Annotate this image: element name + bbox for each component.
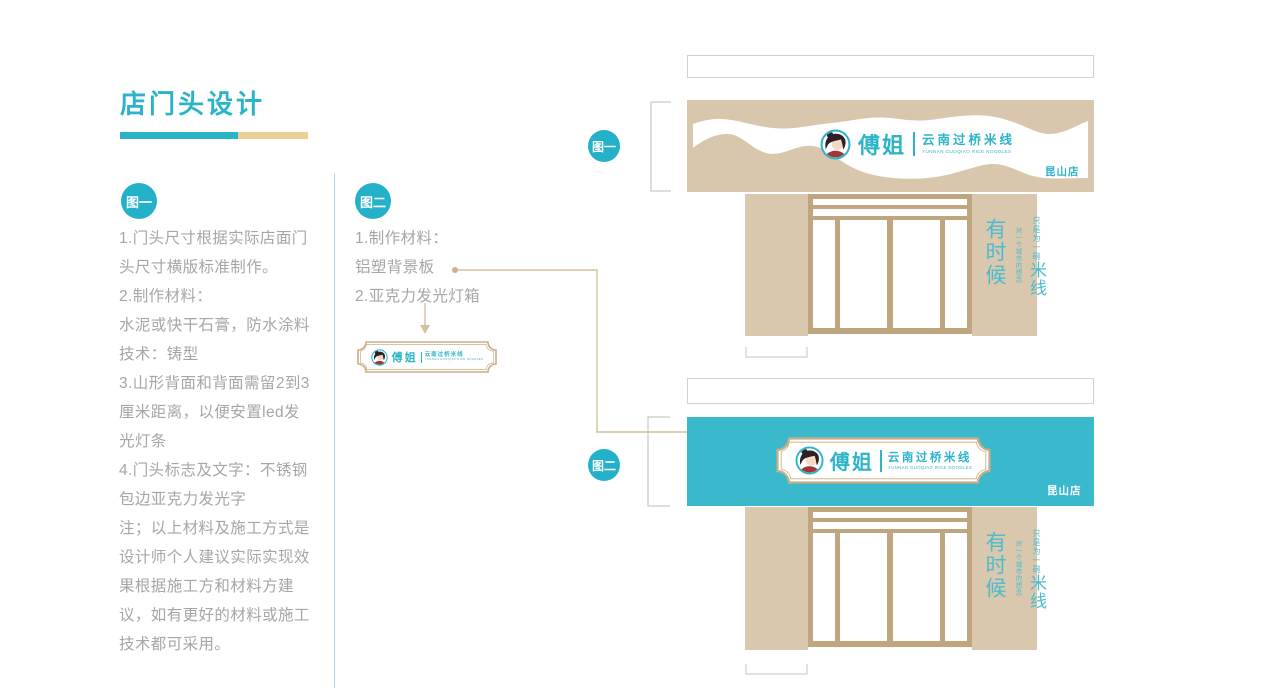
store-name-label: 昆山店	[1047, 483, 1082, 498]
sign2-height-bracket	[648, 417, 670, 506]
brand-name: 傅姐	[392, 349, 418, 365]
diagram1-storefront: 只是为一碗米线 对一个城市的想念 有时候	[745, 194, 1037, 336]
brand-avatar-icon	[820, 129, 851, 160]
left-pillar	[745, 194, 808, 336]
store-name-label: 昆山店	[1045, 164, 1080, 179]
transom-window	[813, 522, 967, 529]
glass-panel	[945, 533, 967, 641]
diagram1-badge: 图一	[588, 130, 620, 162]
figure1-notes: 1.门头尺寸根据实际店面门 头尺寸横版标准制作。 2.制作材料： 水泥或快干石膏…	[119, 224, 310, 659]
title-underline-sand-segment	[238, 132, 308, 139]
pillar-slogan: 只是为一碗米线 对一个城市的想念 有时候	[978, 216, 1049, 324]
slogan-emphasis-text: 米线	[1027, 261, 1046, 297]
brand-tagline-en: YUNNAN GUOQIAO RICE NOODLES	[922, 149, 1015, 155]
column-divider	[334, 173, 335, 688]
slogan-secondary-text: 对一个城市的想念	[1012, 529, 1022, 637]
brand-avatar-icon	[371, 349, 388, 366]
diagram2-signboard: 傅姐 云南过桥米线 YUNNAN GUOQIAO RICE NOODLES 昆山…	[687, 417, 1094, 506]
title-underline-teal-segment	[120, 132, 238, 139]
logo-divider	[421, 352, 422, 363]
glass-panel	[945, 220, 967, 328]
transom-window	[813, 209, 967, 216]
facade2-width-bracket	[746, 664, 807, 674]
brand-tagline-en: YUNNAN GUOQIAO RICE NOODLES	[425, 358, 484, 361]
signboard2-plaque: 傅姐 云南过桥米线 YUNNAN GUOQIAO RICE NOODLES	[775, 436, 992, 485]
transom-window	[813, 512, 967, 518]
glass-panel	[813, 220, 835, 328]
slogan-secondary-text: 对一个城市的想念	[1012, 216, 1022, 324]
slogan-opening-text: 有时候	[980, 216, 1010, 324]
down-arrow-head-icon	[420, 325, 430, 334]
signboard2-logo: 傅姐 云南过桥米线 YUNNAN GUOQIAO RICE NOODLES	[775, 436, 992, 485]
brand-tagline: 云南过桥米线	[888, 451, 972, 465]
figure1-badge: 图一	[121, 183, 157, 219]
slogan-small-text: 只是为一碗	[1032, 216, 1041, 261]
slogan-opening-text: 有时候	[980, 529, 1010, 637]
diagram2-badge: 图二	[588, 449, 620, 481]
brand-tagline-en: YUNNAN GUOQIAO RICE NOODLES	[888, 465, 972, 470]
glass-panel	[813, 533, 835, 641]
glass-door	[893, 220, 940, 328]
lightbox-logo: 傅姐 云南过桥米线 YUNNAN GUOQIAO RICE NOODLES	[356, 340, 498, 374]
glass-door	[893, 533, 940, 641]
lightbox-plaque: 傅姐 云南过桥米线 YUNNAN GUOQIAO RICE NOODLES	[356, 340, 498, 374]
signboard1-face: 傅姐 云南过桥米线 YUNNAN GUOQIAO RICE NOODLES 昆山…	[693, 106, 1088, 186]
slogan-emphasis-text: 米线	[1027, 574, 1046, 610]
glass-door	[840, 220, 887, 328]
brand-avatar-icon	[795, 446, 824, 475]
diagram1-signboard: 傅姐 云南过桥米线 YUNNAN GUOQIAO RICE NOODLES 昆山…	[687, 100, 1094, 192]
title-underline	[120, 132, 308, 139]
figure2-badge: 图二	[355, 183, 391, 219]
sign1-height-bracket	[651, 102, 671, 191]
brand-name: 傅姐	[830, 446, 874, 475]
diagram1-dimension-box	[687, 55, 1094, 78]
storefront-frame	[808, 507, 972, 647]
logo-divider	[880, 450, 882, 472]
glass-door	[840, 533, 887, 641]
pillar-slogan: 只是为一碗米线 对一个城市的想念 有时候	[978, 529, 1049, 637]
diagram2-storefront: 只是为一碗米线 对一个城市的想念 有时候	[745, 507, 1037, 650]
slogan-small-text: 只是为一碗	[1032, 529, 1041, 574]
signboard1-logo: 傅姐 云南过桥米线 YUNNAN GUOQIAO RICE NOODLES	[820, 128, 1015, 160]
diagram2-dimension-box	[687, 378, 1094, 404]
left-pillar	[745, 507, 808, 650]
figure2-notes: 1.制作材料： 铝塑背景板 2.亚克力发光灯箱	[355, 224, 480, 311]
facade1-width-bracket	[746, 347, 807, 357]
brand-tagline: 云南过桥米线	[922, 133, 1015, 149]
brand-name: 傅姐	[858, 128, 906, 160]
storefront-frame	[808, 194, 972, 334]
logo-divider	[913, 132, 915, 156]
transom-window	[813, 199, 967, 205]
page-title: 店门头设计	[120, 84, 265, 121]
